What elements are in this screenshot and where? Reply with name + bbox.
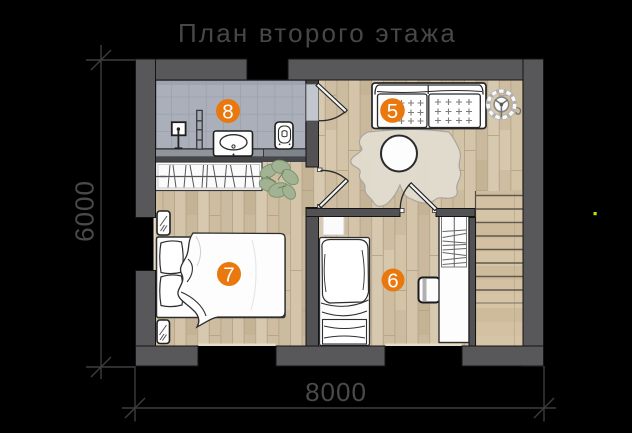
svg-text:7: 7 (223, 263, 234, 286)
svg-text:5: 5 (387, 100, 398, 123)
svg-text:8000: 8000 (305, 377, 367, 407)
svg-text:6000: 6000 (70, 180, 100, 242)
svg-text:План второго этажа: План второго этажа (178, 18, 457, 48)
svg-text:8: 8 (222, 100, 233, 123)
svg-text:6: 6 (387, 269, 398, 292)
